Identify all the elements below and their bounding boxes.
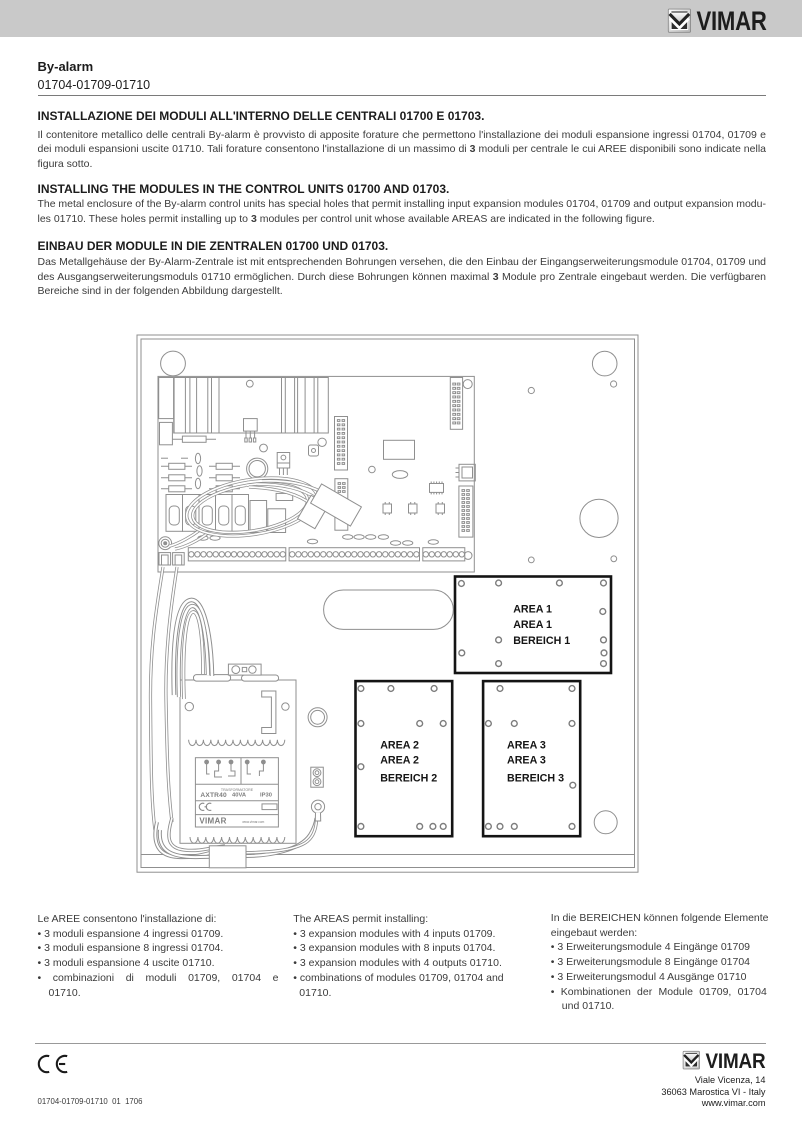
svg-text:AREA 2: AREA 2: [380, 755, 419, 767]
svg-text:AREA 2: AREA 2: [380, 740, 419, 752]
svg-text:AXTR40: AXTR40: [200, 792, 227, 799]
svg-text:www.vimar.com: www.vimar.com: [242, 820, 264, 824]
svg-text:AREA 3: AREA 3: [507, 740, 546, 752]
svg-text:AREA 3: AREA 3: [507, 755, 546, 767]
svg-text:IP30: IP30: [260, 793, 272, 799]
svg-text:VIMAR: VIMAR: [199, 817, 226, 826]
svg-text:VIMAR: VIMAR: [706, 1050, 767, 1071]
svg-text:40VA: 40VA: [232, 793, 247, 799]
svg-text:AREA 1: AREA 1: [513, 604, 552, 616]
svg-text:BEREICH 2: BEREICH 2: [380, 772, 437, 784]
svg-text:BEREICH 1: BEREICH 1: [513, 635, 570, 647]
svg-text:BEREICH 3: BEREICH 3: [507, 772, 564, 784]
svg-text:AREA 1: AREA 1: [513, 619, 552, 631]
